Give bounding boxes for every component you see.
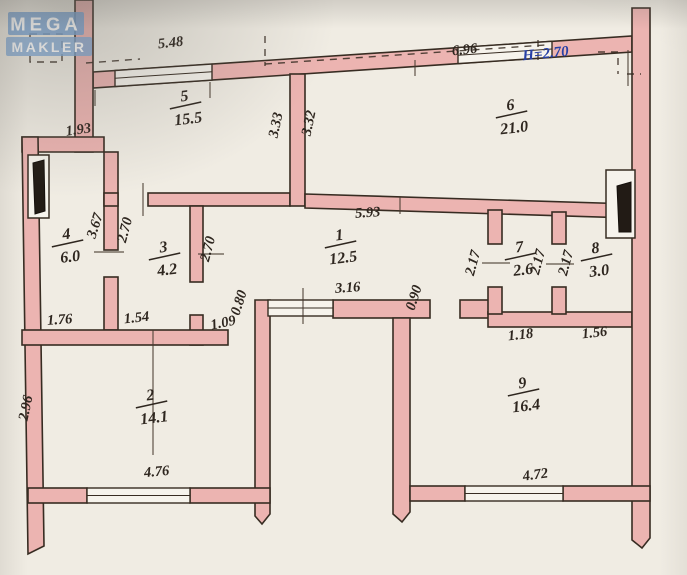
dimension-1.54-10: 1.54 (123, 309, 150, 328)
dimension-1.09-11: 1.09 (209, 313, 237, 334)
wall-divider-5-6 (290, 74, 305, 206)
dimension-1.18-18: 1.18 (507, 326, 535, 345)
wall-divider-7-8-upper (552, 212, 566, 244)
wall-under-room5-left (104, 193, 118, 206)
room-number-2: 2 (144, 387, 155, 405)
wall-room9-bottom-right (563, 486, 650, 501)
room-number-4: 4 (60, 226, 71, 244)
room-label-3: 34.2 (147, 237, 184, 281)
wall-right-outer (632, 8, 650, 548)
dimension-1.56-19: 1.56 (581, 324, 609, 343)
room-number-3: 3 (157, 239, 168, 257)
vent-shaft-room8 (617, 182, 631, 232)
dimension-3.33-3: 3.33 (265, 111, 286, 140)
room-area-8: 3.0 (587, 262, 610, 281)
dashed-stub-top-left (86, 59, 140, 63)
room-number-6: 6 (505, 97, 515, 115)
dimension-5.48-0: 5.48 (157, 34, 185, 53)
wall-room4-right-lower (104, 277, 118, 330)
wall-room7-left-upper (488, 210, 502, 244)
room-area-2: 14.1 (139, 408, 169, 428)
room-area-5: 15.5 (173, 109, 203, 129)
wall-hall-bottom-right (460, 300, 490, 318)
room-number-1: 1 (334, 227, 344, 245)
floor-plan-photo: 515.5621.0112.534.246.072.683.0214.1916.… (0, 0, 687, 575)
dimension-2.17-15: 2.17 (462, 248, 484, 278)
dimension-5.93-5: 5.93 (355, 204, 381, 222)
room-area-1: 12.5 (328, 248, 358, 268)
room-label-6: 621.0 (494, 95, 531, 139)
room-label-8: 83.0 (579, 238, 616, 282)
wall-room2-bottom-right (190, 488, 270, 503)
dimension-1.76-9: 1.76 (47, 311, 74, 329)
room-area-3: 4.2 (155, 261, 178, 280)
dimension-2.17-16: 2.17 (527, 247, 549, 277)
wall-recess-right (393, 318, 410, 522)
dimension-4.76-21: 4.76 (142, 463, 170, 481)
wall-room9-bottom-left (410, 486, 465, 501)
vent-shaft-room4 (33, 160, 45, 214)
room-area-9: 16.4 (511, 396, 541, 416)
dimension-4.72-22: 4.72 (521, 465, 549, 485)
watermark-logo: MEGA MAKLER (6, 12, 92, 56)
room-label-2: 214.1 (134, 385, 171, 429)
room-label-4: 46.0 (50, 224, 87, 268)
room-number-8: 8 (590, 240, 600, 258)
wall-under-room5-right (148, 193, 290, 206)
labels-layer: 515.5621.0112.534.246.072.683.0214.1916.… (15, 34, 615, 485)
room-label-9: 916.4 (506, 373, 543, 417)
room-area-4: 6.0 (59, 248, 81, 267)
logo-text-mega: MEGA (10, 14, 82, 35)
dashed-corner-top-right (598, 52, 618, 74)
room-number-7: 7 (514, 238, 525, 256)
dimension-0.80-12: 0.80 (228, 288, 251, 317)
dimension-3.16-13: 3.16 (334, 279, 362, 297)
logo-text-makler: MAKLER (12, 39, 87, 55)
room-number-5: 5 (179, 88, 189, 106)
wall-divider-7-8-lower (552, 287, 566, 314)
wall-room2-top (22, 330, 228, 345)
room-label-1: 112.5 (323, 225, 360, 269)
room-label-5: 515.5 (168, 86, 205, 130)
dimension-6.96-1: 6.96 (451, 41, 479, 60)
dimension-2.17-17: 2.17 (555, 248, 577, 278)
wall-room7-left-lower (488, 287, 502, 314)
wall-room2-bottom-left (28, 488, 87, 503)
floor-plan: 515.5621.0112.534.246.072.683.0214.1916.… (0, 0, 687, 575)
room-number-9: 9 (517, 375, 527, 393)
room-area-6: 21.0 (498, 118, 529, 138)
